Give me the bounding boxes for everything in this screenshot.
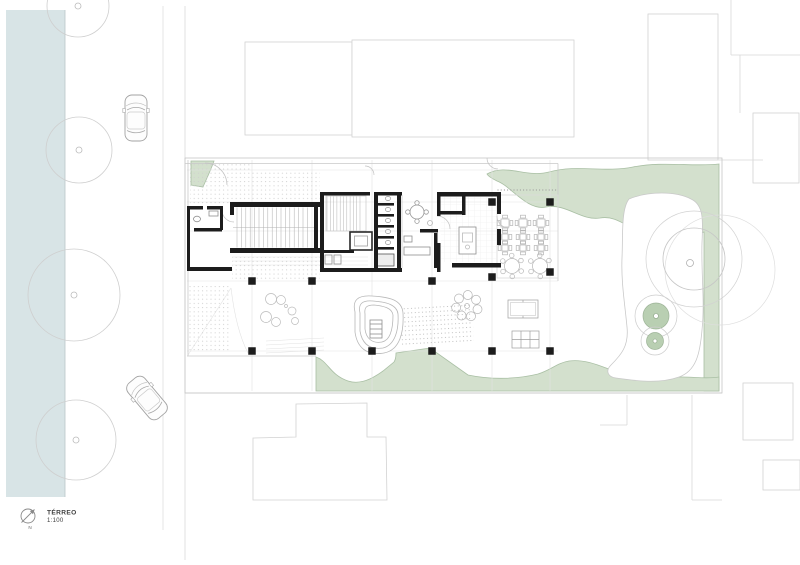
paving-texture <box>232 257 320 281</box>
chair <box>509 246 512 251</box>
column <box>488 198 496 206</box>
column <box>308 277 316 285</box>
chair <box>509 235 512 240</box>
courtyard-seating <box>261 294 299 327</box>
parked-car <box>122 372 172 424</box>
paving-texture <box>189 285 231 353</box>
column <box>546 347 554 355</box>
toilet <box>385 197 390 201</box>
dining-table <box>502 234 508 240</box>
chair <box>547 258 552 263</box>
boundary-dot <box>504 189 505 190</box>
toilet <box>385 241 390 245</box>
dining-table <box>538 245 544 251</box>
chair <box>498 246 501 251</box>
elevator <box>350 232 372 250</box>
column <box>368 347 376 355</box>
plan-scale: 1:100 <box>47 518 64 524</box>
fixture <box>325 255 332 264</box>
dining-table <box>520 245 526 251</box>
boundary-dot <box>536 189 537 190</box>
chair <box>515 221 518 226</box>
boundary-dot <box>501 189 502 190</box>
stall-divider <box>376 203 394 206</box>
column <box>546 268 554 276</box>
column <box>428 347 436 355</box>
column <box>248 347 256 355</box>
column <box>546 198 554 206</box>
meeting-table <box>406 201 433 226</box>
chair <box>537 253 542 258</box>
chair <box>510 221 513 226</box>
dining-table <box>519 219 527 227</box>
chair <box>527 246 530 251</box>
chair <box>509 253 514 258</box>
boundary-dot <box>529 189 530 190</box>
chair <box>519 258 524 263</box>
boundary-dot <box>513 189 514 190</box>
ramp-dot-fan <box>400 303 474 347</box>
chair <box>533 221 536 226</box>
building-layer <box>185 158 558 391</box>
sink <box>209 211 218 216</box>
boundary-dot <box>517 189 518 190</box>
chair <box>539 215 544 218</box>
chair <box>545 246 548 251</box>
paving-texture <box>252 172 320 200</box>
chair <box>519 269 524 274</box>
games-tables <box>508 300 539 348</box>
boundary-dot <box>549 189 550 190</box>
stall-divider <box>376 225 394 228</box>
neighbor-building <box>743 383 793 440</box>
seat-circle <box>472 295 481 304</box>
water-strip <box>6 10 65 497</box>
neighbor-building <box>648 14 718 160</box>
chair <box>534 246 537 251</box>
column <box>428 277 436 285</box>
stall-divider <box>376 236 394 239</box>
chair <box>546 221 549 226</box>
boundary-dot <box>510 189 511 190</box>
seat-circle <box>473 305 482 314</box>
chair <box>527 235 530 240</box>
toilet <box>385 208 390 212</box>
garden-features <box>608 193 775 381</box>
boundary-dot <box>539 189 540 190</box>
chair <box>521 252 526 255</box>
parked-car <box>123 95 149 141</box>
column <box>308 347 316 355</box>
neighbor-building <box>753 113 799 183</box>
column <box>488 347 496 355</box>
chair <box>503 215 508 218</box>
cabinet <box>404 236 412 242</box>
chair <box>534 235 537 240</box>
paving-texture <box>190 163 252 205</box>
ramp-ladder <box>370 320 382 338</box>
neighbor-building <box>763 460 800 490</box>
shower <box>377 254 394 266</box>
kitchen-island <box>459 227 476 254</box>
boundary-dot <box>533 189 534 190</box>
plan-title: TÉRREO <box>47 508 77 517</box>
boundary-dot <box>542 189 543 190</box>
boundary-dot <box>520 189 521 190</box>
stall-divider <box>376 214 394 217</box>
boundary-dot <box>507 189 508 190</box>
neighbor-building <box>245 42 352 135</box>
toilet <box>385 219 390 223</box>
boundary-dot <box>555 189 556 190</box>
neighbor-building <box>352 40 574 137</box>
seat-circle <box>454 294 463 303</box>
chair <box>528 221 531 226</box>
street-layer <box>6 0 185 560</box>
boundary-dot <box>497 189 498 190</box>
chair <box>528 259 533 264</box>
toilet <box>385 230 390 234</box>
dining-table <box>537 219 545 227</box>
chair <box>521 215 526 218</box>
title-block: N TÉRREO 1:100 <box>21 508 77 531</box>
chair <box>501 269 506 274</box>
toilet <box>194 216 201 222</box>
fixture <box>334 255 341 264</box>
boundary-dot <box>526 189 527 190</box>
chair <box>545 235 548 240</box>
round-table <box>533 259 548 274</box>
desk <box>404 247 430 255</box>
ping-pong-table <box>508 300 538 318</box>
dining-table <box>538 234 544 240</box>
chair <box>529 269 534 274</box>
seat-circle <box>463 291 472 300</box>
spiral-ramp <box>354 296 403 354</box>
boundary-dot <box>545 189 546 190</box>
round-table <box>505 259 520 274</box>
chair <box>500 259 505 264</box>
boundary-dot <box>523 189 524 190</box>
column <box>248 277 256 285</box>
north-label: N <box>28 525 31 530</box>
stall-divider <box>376 247 394 250</box>
grid-table <box>512 331 539 348</box>
dining-table <box>502 245 508 251</box>
boundary-dot <box>552 189 553 190</box>
chair <box>503 252 508 255</box>
column <box>488 273 496 281</box>
floor-plan-canvas: N TÉRREO 1:100 <box>0 0 800 565</box>
chair <box>516 246 519 251</box>
north-arrow-icon: N <box>21 509 35 530</box>
neighbor-building <box>253 403 387 500</box>
dining-table <box>520 234 526 240</box>
chair <box>516 235 519 240</box>
